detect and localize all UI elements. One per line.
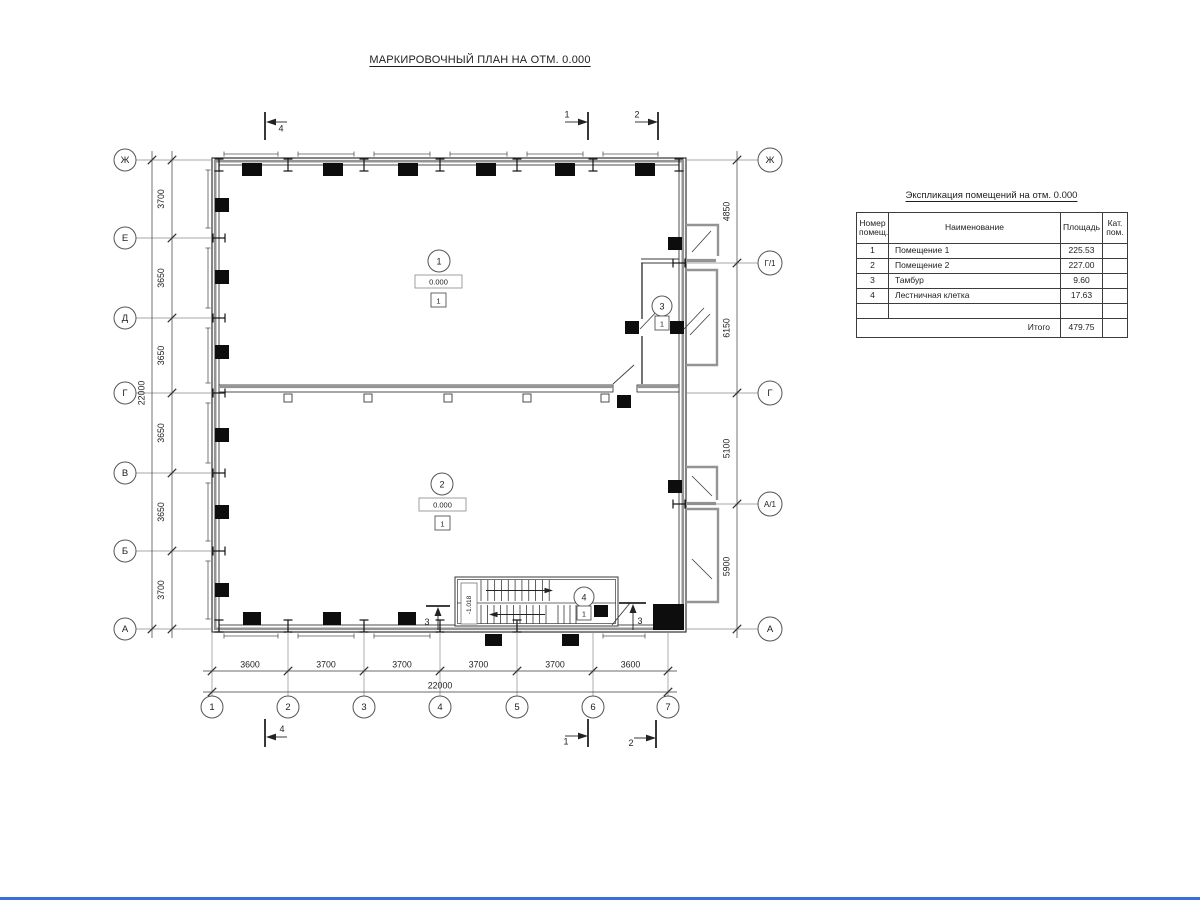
cell-name: Помещение 1 [889, 244, 1061, 259]
cell-name: Помещение 2 [889, 259, 1061, 274]
axis-label: Д [122, 313, 129, 324]
section-mark-1-bottom: 1 [563, 719, 588, 747]
cell-name: Тамбур [889, 274, 1061, 289]
column-fill [323, 612, 341, 625]
axis-label: Б [122, 546, 128, 557]
column-fill [625, 321, 639, 334]
axis-label: 6 [590, 702, 595, 713]
floor-mark: 1 [660, 320, 664, 329]
section-mark-2-top: 2 [634, 110, 658, 141]
header-area: Площадь [1061, 213, 1103, 244]
section-label: 3 [637, 616, 642, 626]
cell-number: 3 [857, 274, 889, 289]
explication-row: 2Помещение 2227.00 [857, 259, 1128, 274]
middle-wall-column [601, 394, 609, 402]
cell-category [1103, 289, 1128, 304]
door-swing [692, 476, 712, 496]
cell-number: 2 [857, 259, 889, 274]
explication-table: Номер помещ. Наименование Площадь Кат. п… [856, 212, 1128, 338]
section-mark-4-bottom: 4 [265, 719, 287, 747]
floor-mark: 1 [436, 297, 440, 306]
total-label: Итого [857, 319, 1061, 338]
room-number: 2 [439, 480, 444, 490]
cell-area: 9.60 [1061, 274, 1103, 289]
column-fill [635, 163, 655, 176]
annex-outline [686, 270, 717, 365]
column-fill [562, 634, 579, 646]
explication-title: Экспликация помещений на отм. 0.000 [856, 190, 1127, 201]
explication-row [857, 304, 1128, 319]
section-arrowhead [578, 119, 588, 126]
staircase: -1.018 [455, 577, 630, 626]
column-fill [555, 163, 575, 176]
dim-text: 3600 [240, 660, 260, 670]
cell-name [889, 304, 1061, 319]
column-fill [215, 270, 229, 284]
dim-text-total: 22000 [137, 381, 147, 406]
section-arrowhead [266, 119, 276, 126]
axis-label: 7 [665, 702, 670, 713]
dim-text: 6150 [722, 318, 732, 338]
column-fill [668, 237, 682, 250]
dim-text: 3700 [316, 660, 336, 670]
header-name: Наименование [889, 213, 1061, 244]
axis-label: В [122, 468, 128, 479]
door-swing [684, 308, 704, 329]
axis-label: Г/1 [764, 259, 776, 268]
section-label: 1 [563, 737, 568, 747]
column-fill [242, 163, 262, 176]
middle-wall-column [523, 394, 531, 402]
section-mark-2-bottom: 2 [628, 720, 656, 748]
axis-label: Ж [766, 155, 775, 166]
section-label: 3 [424, 617, 429, 627]
section-label: 4 [278, 124, 283, 134]
section-label: 2 [634, 110, 639, 120]
dim-text: 3700 [545, 660, 565, 670]
column-fill [398, 612, 416, 625]
column-fill [215, 198, 229, 212]
room-marker-4: 4 1 [574, 587, 594, 620]
column-fill [215, 583, 229, 597]
section-label: 1 [564, 110, 569, 120]
axis-label: 5 [514, 702, 519, 713]
dim-text-total: 22000 [428, 681, 453, 691]
drawing-sheet: МАРКИРОВОЧНЫЙ ПЛАН НА ОТМ. 0.000 [0, 0, 1200, 900]
cell-category [1103, 274, 1128, 289]
middle-wall-column [364, 394, 372, 402]
dim-text: 3700 [392, 660, 412, 670]
annex-outline [686, 509, 718, 602]
column-fill [485, 634, 502, 646]
axis-label: Ж [121, 155, 130, 166]
cell-number: 4 [857, 289, 889, 304]
cell-name: Лестничная клетка [889, 289, 1061, 304]
cell-area: 227.00 [1061, 259, 1103, 274]
section-label: 2 [628, 738, 633, 748]
column-fill [215, 505, 229, 519]
dim-text: 3650 [156, 268, 166, 288]
axis-label: 2 [285, 702, 290, 713]
elevation-value: 0.000 [429, 278, 448, 287]
column-fill [670, 321, 684, 334]
explication: Экспликация помещений на отм. 0.000 Номе… [856, 190, 1127, 338]
axis-label: А [122, 624, 129, 635]
cell-area: 225.53 [1061, 244, 1103, 259]
header-number: Номер помещ. [857, 213, 889, 244]
cell-category [1103, 244, 1128, 259]
annex-outline [686, 467, 717, 500]
column-fill [215, 428, 229, 442]
section-label: 4 [279, 724, 284, 734]
room-number: 3 [659, 302, 664, 312]
axis-label: Е [122, 233, 128, 244]
cell-area: 17.63 [1061, 289, 1103, 304]
room-number: 1 [436, 257, 441, 267]
section-arrowhead [266, 734, 276, 741]
column-fill [476, 163, 496, 176]
dim-text: 3650 [156, 502, 166, 522]
axis-label: А [767, 624, 774, 635]
room-marker-3: 3 1 [652, 296, 672, 330]
column-fill [243, 612, 261, 625]
middle-wall-column [284, 394, 292, 402]
total-value: 479.75 [1061, 319, 1103, 338]
dim-text: 3650 [156, 346, 166, 366]
dim-text: 3600 [621, 660, 641, 670]
explication-row: 1Помещение 1225.53 [857, 244, 1128, 259]
section-mark-1-top: 1 [564, 110, 588, 141]
explication-row: 3Тамбур9.60 [857, 274, 1128, 289]
floor-mark: 1 [582, 610, 586, 619]
cell-number: 1 [857, 244, 889, 259]
floor-plan-drawing: -1.018 1 0.000 1 2 0.000 1 3 [0, 0, 1200, 900]
door-swing [692, 231, 711, 252]
section-arrowhead [648, 119, 658, 126]
elevation-value: 0.000 [433, 501, 452, 510]
stair-elevation-label: -1.018 [466, 595, 473, 614]
section-arrowhead [578, 733, 588, 740]
cell-number [857, 304, 889, 319]
section-arrowhead [646, 735, 656, 742]
axis-label: Г [122, 388, 127, 399]
column-fill [215, 345, 229, 359]
explication-header-row: Номер помещ. Наименование Площадь Кат. п… [857, 213, 1128, 244]
stair-enclosure [455, 577, 618, 626]
dim-text: 4850 [722, 202, 732, 222]
cell-category [1103, 304, 1128, 319]
header-category: Кат. пом. [1103, 213, 1128, 244]
dim-text: 3650 [156, 423, 166, 443]
cell-category [1103, 259, 1128, 274]
column-fill [323, 163, 343, 176]
column-fill [594, 605, 608, 617]
total-category-cell [1103, 319, 1128, 338]
dim-text: 3700 [156, 580, 166, 600]
dim-text: 3700 [156, 189, 166, 209]
dim-text: 3700 [469, 660, 489, 670]
right-annexes [686, 225, 718, 602]
door-swing [690, 314, 710, 335]
cell-area [1061, 304, 1103, 319]
floor-mark: 1 [440, 520, 444, 529]
axis-label: Г [767, 388, 772, 399]
middle-wall-column [444, 394, 452, 402]
dim-text: 5900 [722, 557, 732, 577]
column-fill [653, 604, 684, 630]
axis-label: 3 [361, 702, 366, 713]
section-mark-4-top: 4 [265, 112, 287, 140]
explication-row: 4Лестничная клетка17.63 [857, 289, 1128, 304]
explication-total-row: Итого 479.75 [857, 319, 1128, 338]
axis-label: 1 [209, 702, 214, 713]
room-number: 4 [581, 593, 586, 603]
axis-label: 4 [437, 702, 442, 713]
door-swing [692, 559, 712, 579]
axis-label: А/1 [764, 500, 777, 509]
dim-text: 5100 [722, 439, 732, 459]
column-fill [617, 395, 631, 408]
column-fill [668, 480, 682, 493]
column-fill [398, 163, 418, 176]
